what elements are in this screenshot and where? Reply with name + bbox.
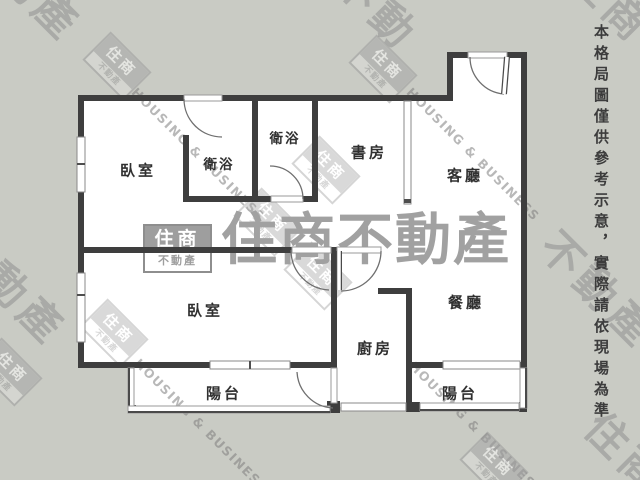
room-label-balcony-right: 陽台 xyxy=(442,383,478,404)
door-swings-layer xyxy=(184,57,504,408)
door-arc-kitchen xyxy=(341,251,381,291)
door-openings-layer xyxy=(184,52,507,403)
room-label-bedroom-1: 臥室 xyxy=(120,160,156,181)
room-label-dining-room: 餐廳 xyxy=(448,292,484,313)
door-arc-bathroom-2 xyxy=(270,166,303,199)
room-label-study: 書房 xyxy=(351,142,387,163)
disclaimer-text: 本格局圖僅供參考示意，實際請依現場為準 xyxy=(590,24,611,454)
room-label-bathroom-2: 衛浴 xyxy=(270,127,301,147)
door-arc-bathroom-1 xyxy=(184,99,222,137)
walls-layer xyxy=(78,52,527,413)
room-label-bathroom-1: 衛浴 xyxy=(204,153,235,173)
room-label-living-room: 客廳 xyxy=(447,165,483,186)
door-arc-entrance xyxy=(470,57,504,94)
door-arc-bedroom-2 xyxy=(291,250,329,290)
room-label-kitchen: 廚房 xyxy=(357,338,393,359)
floorplan-drawing xyxy=(0,0,640,480)
floorplan-canvas: 動產 商不動 住商 不動產 不動產 住商 HOUSING & BUSINESS … xyxy=(0,0,640,480)
room-label-balcony-left: 陽台 xyxy=(206,383,242,404)
room-label-bedroom-2: 臥室 xyxy=(187,300,223,321)
